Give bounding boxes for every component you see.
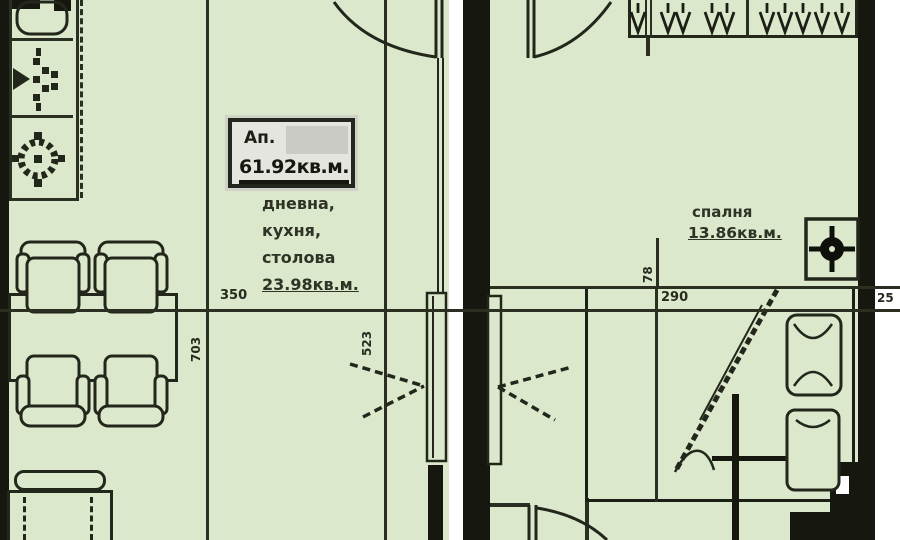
plan-symbols <box>0 0 900 540</box>
chair-bottom-right <box>95 356 167 426</box>
apartment-number-redacted <box>286 126 348 154</box>
dim-wall-thickness: 25 <box>877 291 894 305</box>
entry-door-right <box>528 0 611 58</box>
living-room-label-1: дневна, <box>262 194 335 213</box>
apartment-area: 61.92кв.м. <box>239 156 349 178</box>
chair-top-left <box>17 242 89 312</box>
floor-plan: 350 290 25 703 523 78 Ап. 61.92кв.м. дне… <box>0 0 900 540</box>
pillow-top <box>787 315 841 395</box>
dimension-line-horizontal <box>0 309 900 312</box>
bedroom-door <box>529 505 607 540</box>
sliding-door-panel-left <box>427 293 446 461</box>
bedroom-area: 13.86кв.м. <box>688 224 782 242</box>
door-swing-chevron-left <box>350 364 424 417</box>
sink-icon <box>17 2 67 34</box>
dim-niche: 78 <box>641 255 655 283</box>
living-room-label-3: столова <box>262 248 335 267</box>
faucet-icon <box>13 48 58 111</box>
blanket-fold <box>675 290 777 472</box>
hanger-icon <box>631 3 849 32</box>
dim-hall-depth: 523 <box>360 322 374 356</box>
pillow-bottom <box>787 410 839 490</box>
bedroom-upper-line <box>490 286 900 289</box>
dim-living-width: 350 <box>220 288 247 303</box>
door-swing-chevron-right <box>498 367 572 420</box>
sliding-door-panel-right <box>488 296 501 464</box>
dim-living-depth: 703 <box>189 328 203 362</box>
burner-icon <box>12 132 65 187</box>
bedroom-label: спалня <box>692 203 752 221</box>
apartment-label: Ап. <box>244 128 275 148</box>
apartment-area-underline <box>239 180 349 184</box>
apartment-label-box: Ап. 61.92кв.м. <box>228 118 355 188</box>
ceiling-light-icon <box>806 219 858 279</box>
chair-bottom-left <box>17 356 89 426</box>
chair-top-right <box>95 242 167 312</box>
living-room-label-2: кухня, <box>262 221 321 240</box>
dim-bedroom-width: 290 <box>661 290 688 305</box>
living-room-area: 23.98кв.м. <box>262 275 359 294</box>
